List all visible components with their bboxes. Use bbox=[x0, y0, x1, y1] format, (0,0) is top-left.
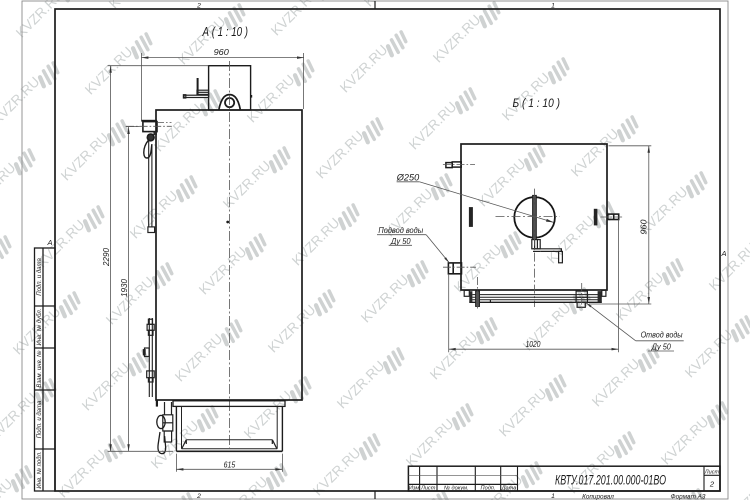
svg-text:1: 1 bbox=[551, 493, 555, 500]
svg-text:1930: 1930 bbox=[120, 278, 129, 297]
svg-text:Лист: Лист bbox=[420, 485, 436, 491]
svg-text:Ду 50: Ду 50 bbox=[390, 237, 411, 246]
svg-text:1: 1 bbox=[551, 3, 555, 10]
svg-text:Лист: Лист bbox=[704, 469, 720, 475]
svg-text:Отвод воды: Отвод воды bbox=[641, 330, 683, 339]
svg-text:1020: 1020 bbox=[526, 340, 541, 349]
svg-text:615: 615 bbox=[224, 460, 236, 469]
svg-text:Подп. и дата: Подп. и дата bbox=[37, 400, 43, 438]
svg-text:Подп. и дата: Подп. и дата bbox=[37, 258, 43, 296]
svg-text:А: А bbox=[720, 249, 726, 258]
svg-text:Изм: Изм bbox=[409, 485, 420, 491]
svg-text:Подвод воды: Подвод воды bbox=[378, 226, 423, 235]
svg-text:Формат А3: Формат А3 bbox=[671, 494, 706, 500]
svg-text:А: А bbox=[46, 238, 52, 247]
svg-text:2: 2 bbox=[196, 3, 201, 10]
svg-text:2: 2 bbox=[196, 493, 201, 500]
svg-text:КВТУ.017.201.00.000-01ВО: КВТУ.017.201.00.000-01ВО bbox=[555, 472, 666, 488]
svg-text:2290: 2290 bbox=[102, 247, 111, 267]
svg-text:А ( 1 : 10 ): А ( 1 : 10 ) bbox=[202, 25, 248, 39]
svg-text:Подп.: Подп. bbox=[481, 485, 496, 491]
svg-text:960: 960 bbox=[214, 48, 230, 57]
svg-text:Копировал: Копировал bbox=[582, 494, 614, 500]
svg-text:Инв. № дубл.: Инв. № дубл. bbox=[36, 309, 43, 346]
svg-text:Б ( 1 : 10 ): Б ( 1 : 10 ) bbox=[513, 98, 561, 110]
svg-text:Инв. № подл.: Инв. № подл. bbox=[36, 451, 43, 488]
svg-text:Ø250: Ø250 bbox=[396, 173, 419, 183]
svg-text:№ докум.: № докум. bbox=[444, 485, 469, 491]
svg-text:Дата: Дата bbox=[501, 485, 517, 491]
svg-text:Взам. инв. №: Взам. инв. № bbox=[36, 350, 43, 388]
svg-text:2: 2 bbox=[709, 480, 715, 489]
svg-text:Ду 50: Ду 50 bbox=[651, 342, 672, 351]
svg-text:960: 960 bbox=[640, 219, 649, 235]
